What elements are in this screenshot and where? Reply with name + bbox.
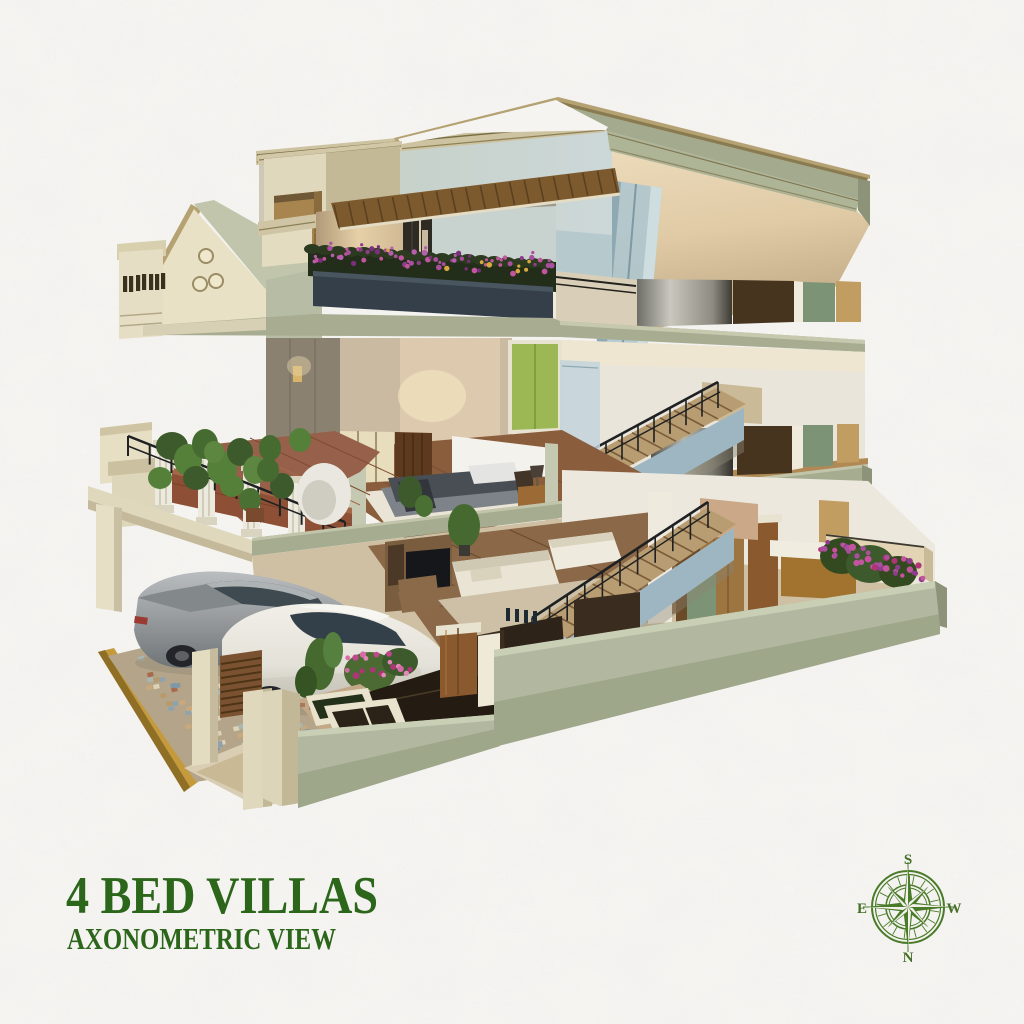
svg-text:E: E [857,901,867,917]
svg-text:4 BED VILLAS: 4 BED VILLAS [66,867,378,925]
svg-text:S: S [904,852,912,868]
svg-text:N: N [903,950,914,966]
svg-text:AXONOMETRIC VIEW: AXONOMETRIC VIEW [67,921,336,956]
svg-text:W: W [947,901,962,917]
